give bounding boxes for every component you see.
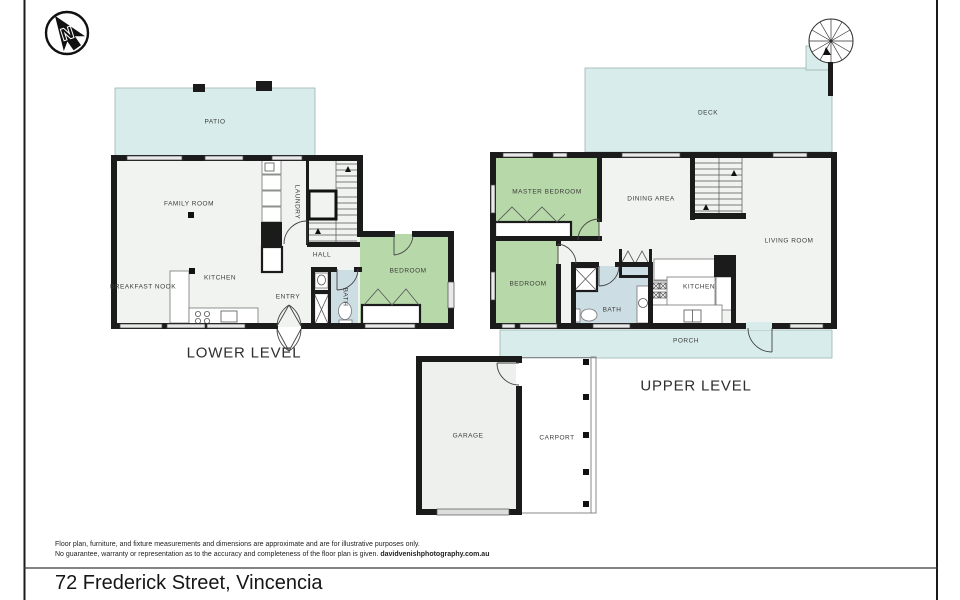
porch-label: PORCH: [673, 338, 699, 345]
toilet: [581, 309, 597, 321]
carport-post: [583, 359, 589, 365]
lower-kitchen-label: KITCHEN: [204, 275, 236, 282]
garage-label: GARAGE: [453, 433, 484, 440]
garage-door: [437, 509, 509, 515]
carport-post: [583, 501, 589, 507]
disclaimer-text: Floor plan, furniture, and fixture measu…: [55, 540, 489, 560]
carport-post: [583, 469, 589, 475]
kitchen-counter: [170, 271, 189, 323]
laundry-label: LAUNDRY: [294, 185, 301, 219]
porch-area: [500, 330, 832, 358]
post: [188, 212, 194, 218]
deck-label: DECK: [698, 110, 718, 117]
disclaimer-line2: No guarantee, warranty or representation…: [55, 550, 489, 560]
lower-level-title: LOWER LEVEL: [187, 345, 302, 362]
master-wardrobe: [495, 222, 571, 238]
carport-label: CARPORT: [539, 435, 574, 442]
floor-plan-drawing: N: [0, 0, 960, 600]
family-room-label: FAMILY ROOM: [164, 201, 214, 208]
post: [189, 268, 195, 274]
master-bedroom-label: MASTER BEDROOM: [512, 189, 581, 196]
fridge: [262, 247, 282, 272]
carport-post: [583, 432, 589, 438]
upper-kitchen-label: KITCHEN: [683, 284, 715, 291]
hall-label: HALL: [313, 252, 331, 259]
living-room-label: LIVING ROOM: [765, 238, 814, 245]
lower-bath-label: BATH: [342, 288, 349, 307]
property-address: 72 Frederick Street, Vincencia: [55, 572, 323, 595]
north-compass-icon: N: [44, 8, 88, 55]
lower-bedroom-label: BEDROOM: [389, 268, 426, 275]
upper-bedroom-label: BEDROOM: [509, 281, 546, 288]
entry-label: ENTRY: [276, 294, 300, 301]
breakfast-nook-label: BREAKFAST NOOK: [110, 284, 176, 291]
floor-plan-page: N: [0, 0, 960, 600]
dining-area-label: DINING AREA: [627, 196, 674, 203]
patio-label: PATIO: [204, 119, 225, 126]
disclaimer-line1: Floor plan, furniture, and fixture measu…: [55, 540, 489, 550]
upper-level-title: UPPER LEVEL: [640, 378, 751, 395]
bedroom-closet: [362, 305, 420, 324]
photography-credit: davidvenishphotography.com.au: [380, 551, 489, 558]
upper-bath-label: BATH: [603, 307, 622, 314]
carport-post: [583, 394, 589, 400]
lower-level-plan: [111, 81, 454, 351]
